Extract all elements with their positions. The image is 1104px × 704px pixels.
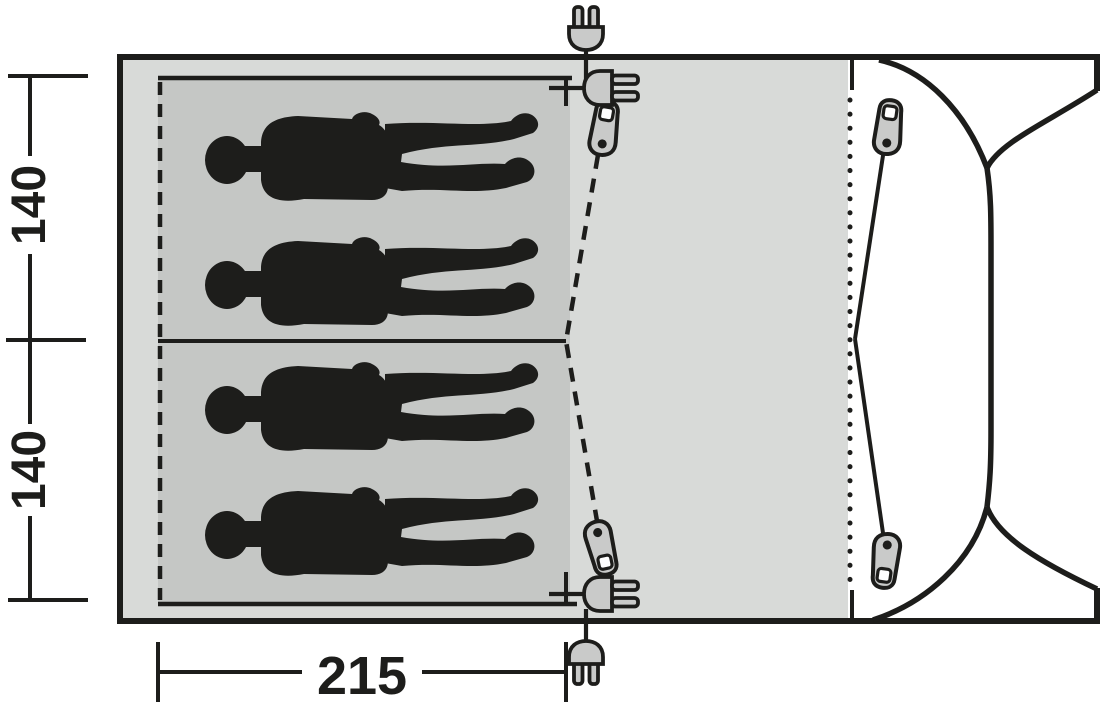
tent-floorplan-diagram: 140 140 215 xyxy=(0,0,1104,704)
door-curve-top-right xyxy=(987,90,1097,168)
zipper-pull-icon-door-bottom xyxy=(868,532,901,589)
dimension-label-215: 215 xyxy=(317,646,407,704)
dimension-label-140-bottom: 140 xyxy=(3,430,56,510)
tent-floorplan-svg: 140 140 215 xyxy=(0,0,1104,704)
door-curve-bottom-right xyxy=(987,507,1097,589)
door-tie-cord-top xyxy=(855,149,884,339)
dimension-left xyxy=(6,76,88,600)
door-center-seam xyxy=(987,168,991,507)
zipper-pull-icon-door-top xyxy=(872,99,905,156)
door-tie-cord-bottom xyxy=(855,339,884,540)
dimension-label-140-top: 140 xyxy=(3,165,56,245)
